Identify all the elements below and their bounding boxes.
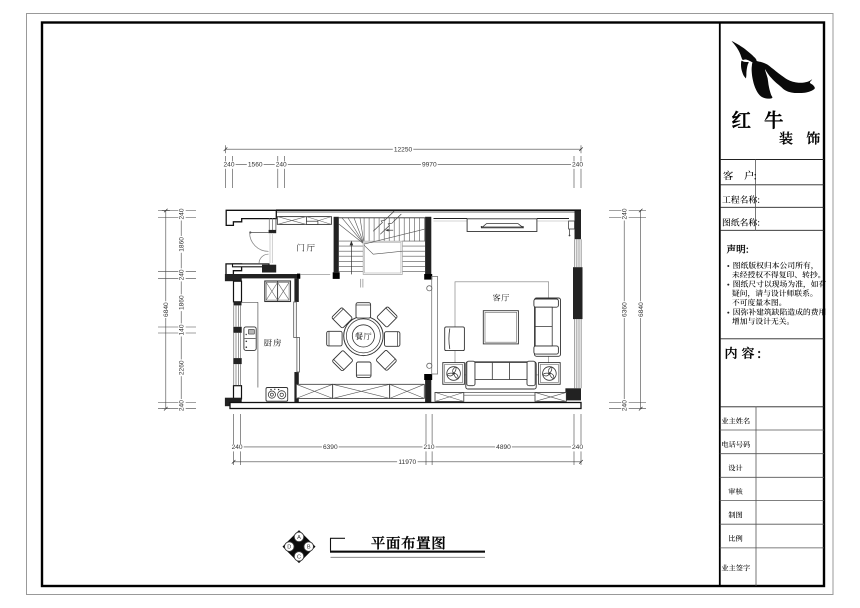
svg-text:1560: 1560	[248, 162, 263, 169]
svg-text:240: 240	[621, 208, 628, 219]
svg-text:1860: 1860	[178, 295, 185, 310]
svg-text:240: 240	[621, 400, 628, 411]
svg-text:210: 210	[423, 444, 434, 451]
svg-text:A: A	[297, 535, 301, 541]
svg-text:240: 240	[572, 444, 583, 451]
svg-text:4890: 4890	[496, 444, 511, 451]
svg-text:6390: 6390	[323, 444, 338, 451]
svg-text:240: 240	[276, 162, 287, 169]
svg-text:6840: 6840	[163, 302, 170, 317]
svg-text:240: 240	[178, 400, 185, 411]
svg-text:240: 240	[178, 208, 185, 219]
svg-text:140: 140	[178, 324, 185, 335]
svg-text:12250: 12250	[394, 146, 413, 153]
svg-text:2260: 2260	[178, 360, 185, 375]
svg-text:D: D	[287, 545, 291, 551]
svg-text:11970: 11970	[398, 459, 416, 466]
svg-text:6360: 6360	[621, 302, 628, 317]
svg-text:B: B	[307, 545, 311, 551]
svg-text:1860: 1860	[178, 237, 185, 252]
svg-text:240: 240	[232, 444, 243, 451]
svg-text:9970: 9970	[422, 162, 437, 169]
svg-text:6840: 6840	[638, 302, 645, 317]
svg-text:C: C	[297, 554, 301, 560]
svg-text:240: 240	[178, 269, 185, 280]
svg-text:240: 240	[223, 162, 234, 169]
svg-text:240: 240	[572, 162, 583, 169]
